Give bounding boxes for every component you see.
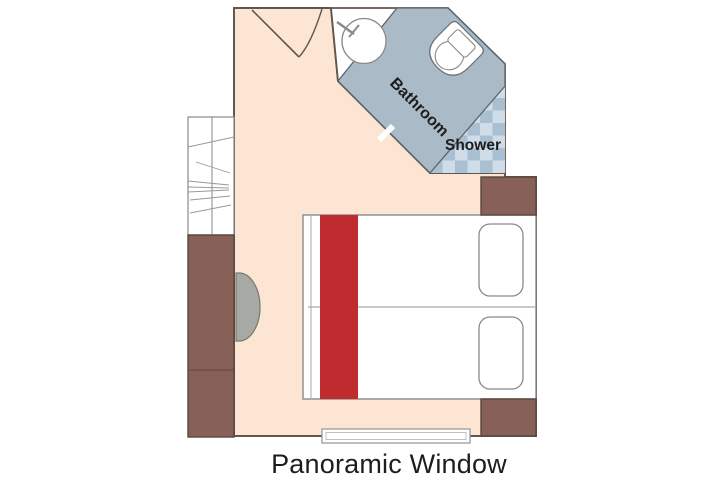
wardrobe: [188, 235, 234, 437]
panoramic-window: [322, 429, 470, 443]
shower-label: Shower: [445, 137, 501, 154]
bed-runner: [320, 215, 358, 399]
luggage-rack: [188, 117, 234, 235]
pillow-top: [479, 224, 523, 296]
luggage-rack-outline: [188, 117, 234, 235]
floor-plan: Bathroom Shower Panoramic Window: [0, 0, 726, 484]
wardrobe-body: [188, 235, 234, 437]
window-sill: [322, 429, 470, 443]
cabinet-bottom-right: [481, 399, 536, 436]
pillow-bottom: [479, 317, 523, 389]
floor-plan-canvas: Bathroom Shower Panoramic Window: [0, 0, 726, 484]
sink-basin: [342, 19, 386, 64]
cabinet-top-right: [481, 177, 536, 215]
panoramic-window-label: Panoramic Window: [271, 449, 507, 479]
bed: [303, 215, 536, 399]
